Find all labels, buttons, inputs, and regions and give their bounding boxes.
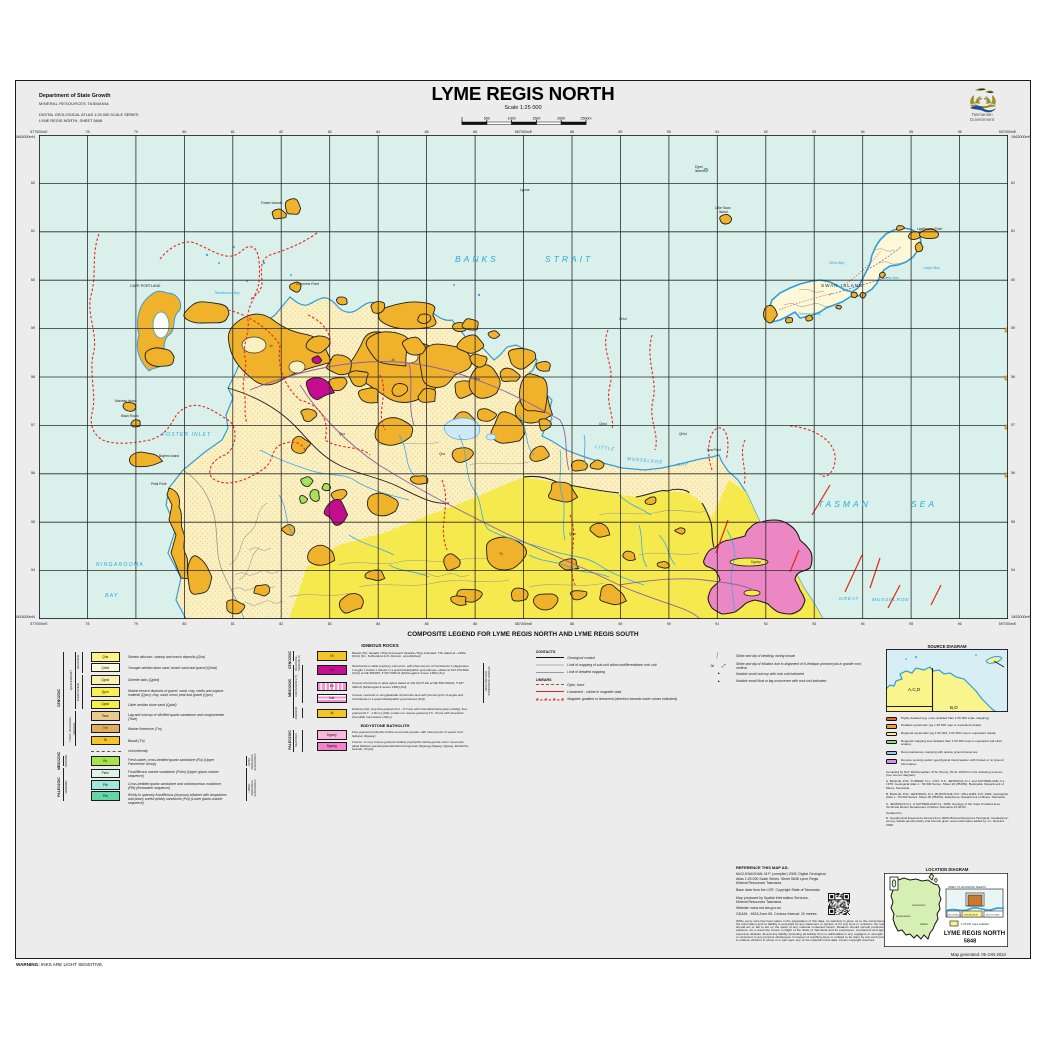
svg-text:CAPE PORTLAND: CAPE PORTLAND: [130, 284, 161, 288]
svg-text:Lyprae: Lyprae: [520, 188, 530, 192]
svg-text:Qhbd: Qhbd: [679, 432, 687, 436]
svg-text:Telegraph Bay: Telegraph Bay: [798, 312, 821, 316]
svg-text:BAY: BAY: [677, 462, 688, 467]
svg-text:Qha: Qha: [339, 432, 345, 436]
svg-text:Queenstown: Queenstown: [896, 914, 911, 918]
svg-text:Black Rocks: Black Rocks: [121, 414, 139, 418]
svg-text:RINGAROOMA: RINGAROOMA: [96, 562, 144, 568]
svg-text:Qhbd: Qhbd: [619, 317, 627, 321]
svg-text:INDEX TO ADJOINING SHEETS: INDEX TO ADJOINING SHEETS: [948, 885, 986, 889]
svg-text:TASMAN: TASMAN: [818, 499, 871, 509]
svg-text:Jd: Jd: [269, 344, 273, 348]
svg-text:1:25 000 maps available: 1:25 000 maps available: [961, 922, 990, 926]
svg-text:Tb: Tb: [499, 552, 503, 556]
svg-text:EDDYSTONE: EDDYSTONE: [986, 915, 1000, 917]
svg-text:Baynes Island: Baynes Island: [159, 454, 179, 458]
svg-text:SWAN ISLAND: SWAN ISLAND: [821, 283, 863, 288]
svg-text:B,D: B,D: [950, 705, 958, 710]
svg-text:Qha: Qha: [439, 452, 445, 456]
svg-text:BAY: BAY: [105, 593, 119, 599]
svg-text:Petal Point: Petal Point: [151, 482, 167, 486]
svg-text:Qpbd: Qpbd: [599, 422, 607, 426]
svg-text:Jetty Bay: Jetty Bay: [883, 276, 899, 280]
svg-text:Foster Islands: Foster Islands: [261, 201, 283, 205]
svg-text:Island: Island: [719, 210, 728, 214]
svg-text:GREAT: GREAT: [839, 596, 859, 602]
svg-text:Jd: Jd: [391, 358, 395, 362]
svg-text:BOOBYALLA: BOOBYALLA: [948, 914, 962, 917]
svg-text:Cummins Point: Cummins Point: [296, 282, 319, 286]
svg-text:5848: 5848: [964, 939, 976, 945]
svg-text:Hobart: Hobart: [920, 922, 928, 926]
svg-text:Latjes Bay: Latjes Bay: [923, 266, 940, 270]
svg-text:Maclean Island: Maclean Island: [115, 399, 137, 403]
svg-text:West Bay: West Bay: [829, 261, 845, 265]
svg-text:FOSTER INLET: FOSTER INLET: [162, 432, 211, 438]
svg-text:BANKS: BANKS: [455, 254, 499, 264]
svg-text:Boa Point: Boa Point: [707, 448, 721, 452]
svg-text:Dgwey: Dgwey: [751, 560, 761, 564]
svg-text:MUSSELROE: MUSSELROE: [964, 915, 978, 917]
svg-text:MUSSELROE: MUSSELROE: [872, 597, 909, 603]
svg-text:A,C,D: A,C,D: [908, 687, 921, 692]
svg-text:Qha: Qha: [474, 377, 480, 381]
svg-text:Tebrakunna Bay: Tebrakunna Bay: [214, 291, 240, 295]
svg-text:STRAIT: STRAIT: [545, 254, 593, 264]
svg-text:SEA: SEA: [911, 499, 937, 509]
svg-text:Qpm: Qpm: [569, 532, 576, 536]
svg-text:LYME REGIS NORTH: LYME REGIS NORTH: [944, 930, 1006, 937]
svg-text:Lighthouse Point: Lighthouse Point: [917, 227, 943, 231]
svg-text:Launceston: Launceston: [912, 903, 926, 907]
svg-text:Island: Island: [695, 169, 704, 173]
